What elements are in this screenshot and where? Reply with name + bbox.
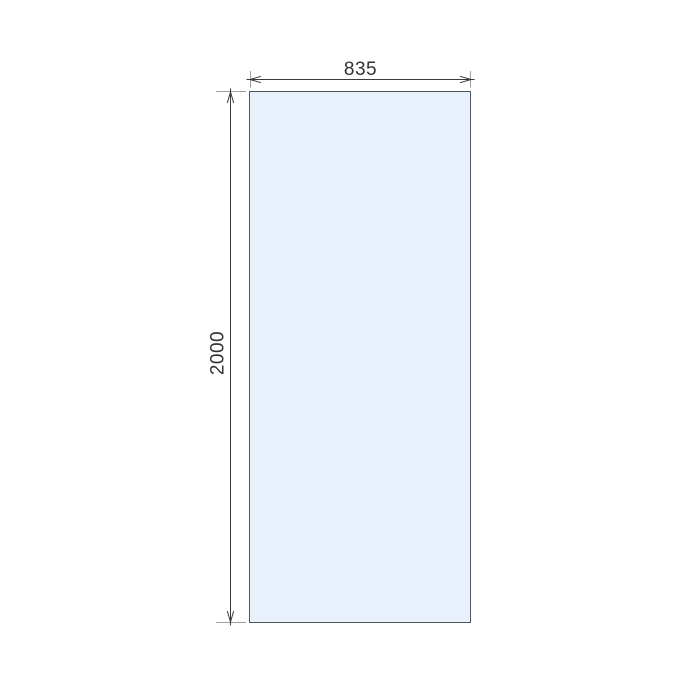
height-top-arrowhead-icon: [227, 92, 233, 103]
height-bottom-arrowhead-icon: [227, 611, 233, 622]
width-dimension-label: 835: [250, 60, 471, 79]
glass-panel: [249, 91, 471, 623]
height-dimension-label: 2000: [209, 331, 228, 375]
drawing-canvas: 835 2000: [0, 0, 675, 675]
